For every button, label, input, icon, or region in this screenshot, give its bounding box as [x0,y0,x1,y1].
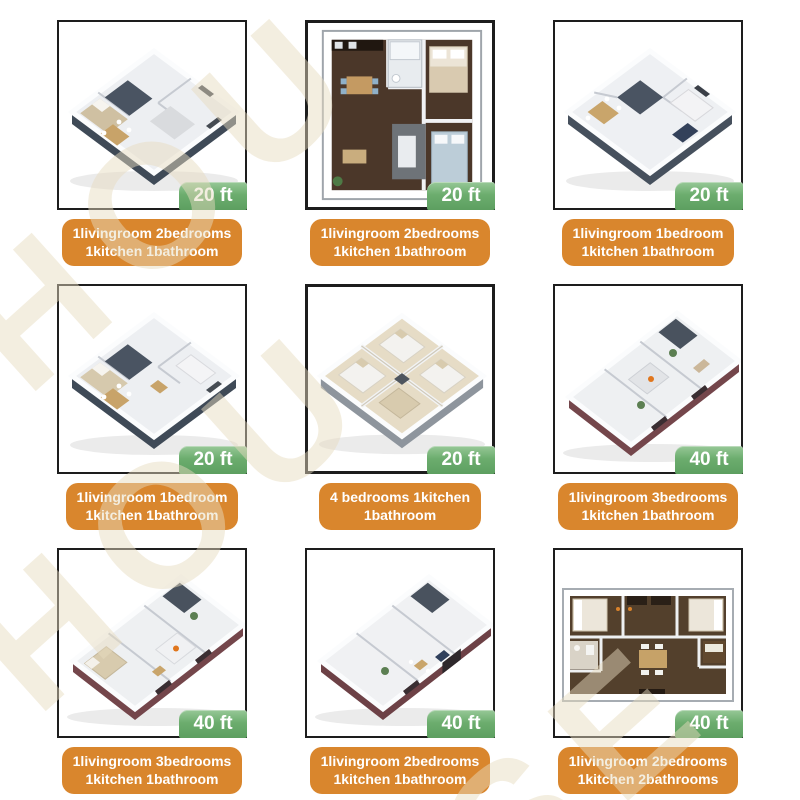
floorplan-image-5: 20 ft [305,284,495,474]
room-description-line2: 1bathroom [330,506,470,524]
size-badge-text: 40 ft [689,449,728,471]
room-description-line1: 1livingroom 1bedroom [77,488,228,506]
room-description-line1: 1livingroom 1bedroom [573,224,724,242]
floorplan-topdown-wide [555,550,741,736]
floorplan-grid: 20 ft 1livingroom 2bedrooms 1kitchen 1ba… [0,0,800,800]
room-description: 1livingroom 1bedroom 1kitchen 1bathroom [66,483,239,530]
room-description-line1: 1livingroom 3bedrooms [569,488,728,506]
floorplan-image-1: 20 ft [57,20,247,210]
room-description-line1: 1livingroom 3bedrooms [73,752,232,770]
size-badge-text: 20 ft [193,185,232,207]
size-badge: 40 ft [179,710,247,738]
room-description-line1: 1livingroom 2bedrooms [321,224,480,242]
size-badge: 40 ft [427,710,495,738]
floorplan-image-4: 20 ft [57,284,247,474]
room-description-line2: 1kitchen 1bathroom [573,242,724,260]
plan-card-2: 20 ft 1livingroom 2bedrooms 1kitchen 1ba… [276,20,524,266]
size-badge-text: 40 ft [441,713,480,735]
size-badge: 20 ft [675,182,743,210]
size-badge-text: 20 ft [441,185,480,207]
room-description: 1livingroom 2bedrooms 1kitchen 2bathroom… [558,747,739,794]
size-badge-text: 20 ft [689,185,728,207]
plan-card-7: 40 ft 1livingroom 3bedrooms 1kitchen 1ba… [28,548,276,794]
floorplan-image-2: 20 ft [305,20,495,210]
plan-card-1: 20 ft 1livingroom 2bedrooms 1kitchen 1ba… [28,20,276,266]
floorplan-3d-iso-long [59,550,245,736]
floorplan-image-7: 40 ft [57,548,247,738]
floorplan-image-3: 20 ft [553,20,743,210]
size-badge: 20 ft [427,446,495,474]
plan-card-3: 20 ft 1livingroom 1bedroom 1kitchen 1bat… [524,20,772,266]
floorplan-3d-iso-4bed [308,287,492,471]
size-badge-text: 40 ft [689,713,728,735]
floorplan-3d-iso-square [555,22,741,208]
size-badge: 20 ft [179,446,247,474]
plan-card-9: 40 ft 1livingroom 2bedrooms 1kitchen 2ba… [524,548,772,794]
size-badge-text: 40 ft [193,713,232,735]
room-description: 1livingroom 2bedrooms 1kitchen 1bathroom [310,219,491,266]
plan-card-4: 20 ft 1livingroom 1bedroom 1kitchen 1bat… [28,284,276,530]
room-description: 4 bedrooms 1kitchen 1bathroom [319,483,481,530]
floorplan-image-8: 40 ft [305,548,495,738]
plan-card-8: 40 ft 1livingroom 2bedrooms 1kitchen 1ba… [276,548,524,794]
room-description-line2: 1kitchen 1bathroom [321,242,480,260]
room-description-line2: 1kitchen 1bathroom [73,770,232,788]
room-description-line2: 1kitchen 2bathrooms [569,770,728,788]
size-badge-text: 20 ft [441,449,480,471]
room-description: 1livingroom 3bedrooms 1kitchen 1bathroom [558,483,739,530]
room-description-line1: 4 bedrooms 1kitchen [330,488,470,506]
size-badge: 20 ft [427,182,495,210]
room-description-line1: 1livingroom 2bedrooms [569,752,728,770]
floorplan-3d-iso-square [59,286,245,472]
room-description-line2: 1kitchen 1bathroom [77,506,228,524]
room-description: 1livingroom 1bedroom 1kitchen 1bathroom [562,219,735,266]
size-badge: 40 ft [675,710,743,738]
size-badge: 40 ft [675,446,743,474]
room-description-line1: 1livingroom 2bedrooms [73,224,232,242]
size-badge-text: 20 ft [193,449,232,471]
room-description-line2: 1kitchen 1bathroom [569,506,728,524]
size-badge: 20 ft [179,182,247,210]
room-description-line2: 1kitchen 1bathroom [73,242,232,260]
floorplan-3d-iso-long [307,550,493,736]
floorplan-image-9: 40 ft [553,548,743,738]
floorplan-3d-iso-long [555,286,741,472]
room-description: 1livingroom 2bedrooms 1kitchen 1bathroom [310,747,491,794]
plan-card-6: 40 ft 1livingroom 3bedrooms 1kitchen 1ba… [524,284,772,530]
floorplan-3d-iso-square [59,22,245,208]
room-description-line1: 1livingroom 2bedrooms [321,752,480,770]
floorplan-topdown-square [308,23,492,207]
room-description: 1livingroom 3bedrooms 1kitchen 1bathroom [62,747,243,794]
room-description: 1livingroom 2bedrooms 1kitchen 1bathroom [62,219,243,266]
plan-card-5: 20 ft 4 bedrooms 1kitchen 1bathroom [276,284,524,530]
room-description-line2: 1kitchen 1bathroom [321,770,480,788]
floorplan-image-6: 40 ft [553,284,743,474]
